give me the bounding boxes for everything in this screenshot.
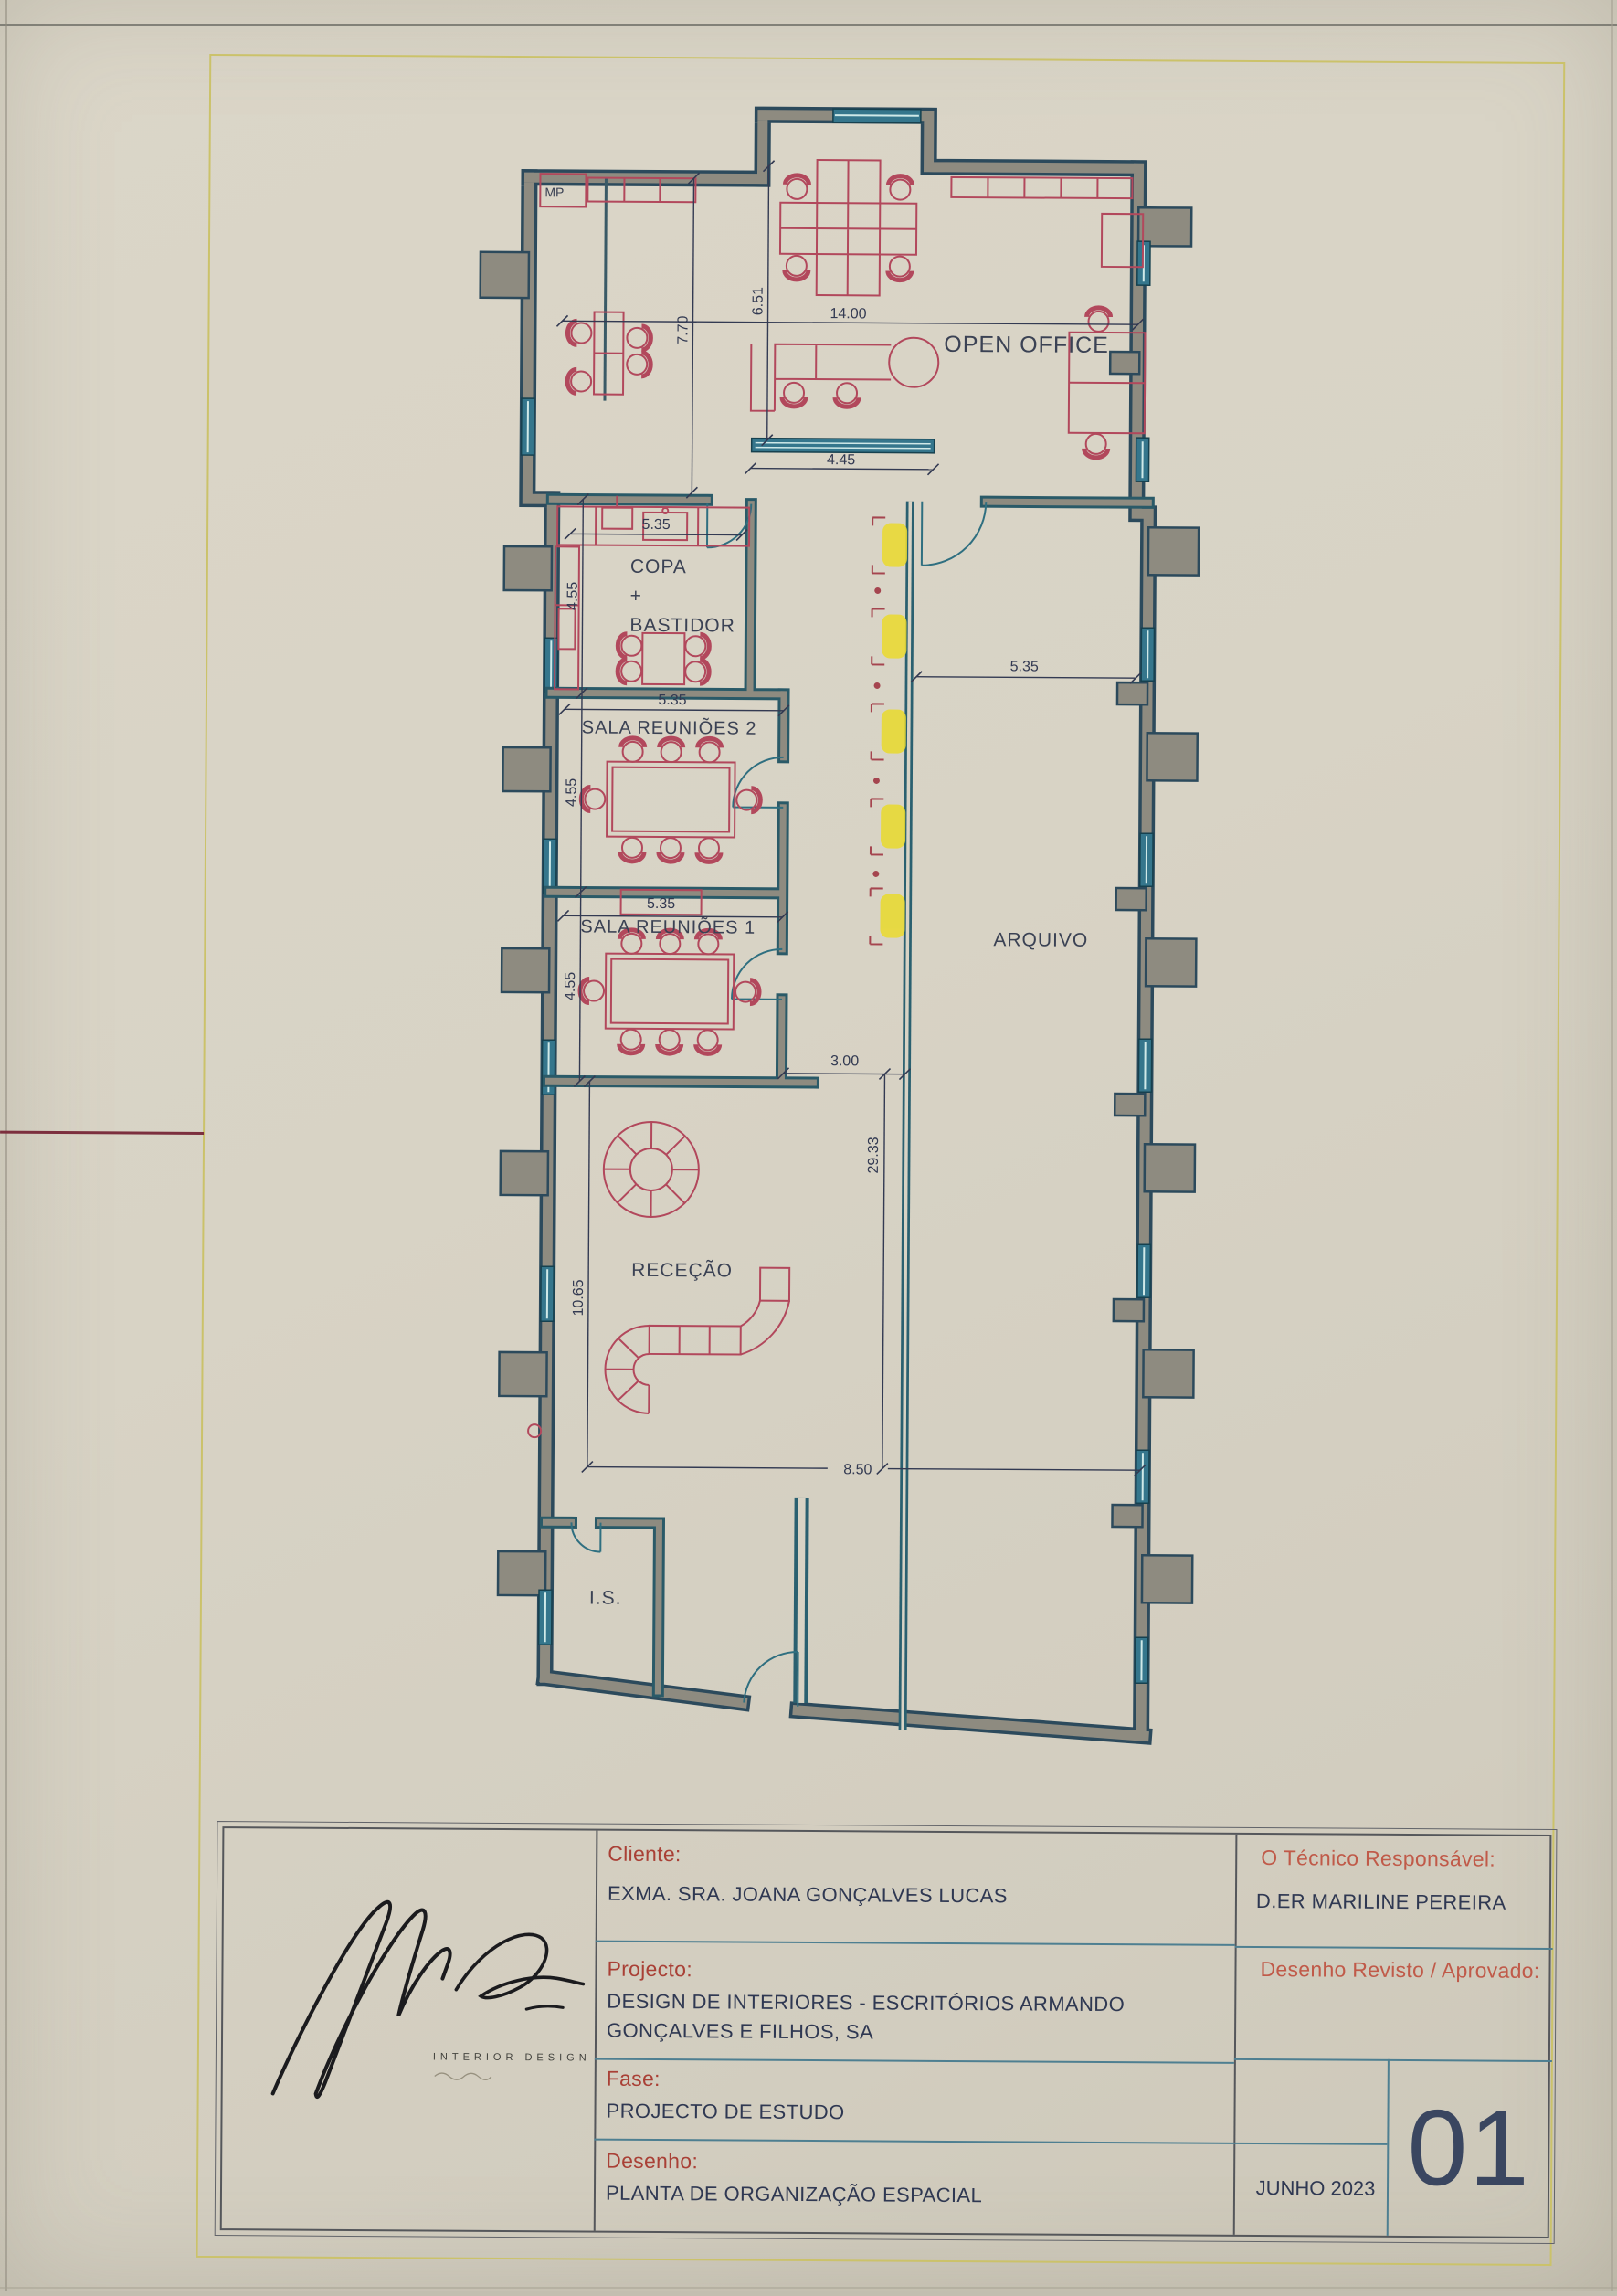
projecto-value-line1: DESIGN DE INTERIORES - ESCRITÓRIOS ARMAN… [607,1990,1125,2016]
label-copa-2: + [630,586,642,607]
dim-sala2-width: 5.35 [658,693,686,708]
wall-counter-right [951,177,1132,198]
dim-sala1-height: 4.55 [563,972,578,1000]
label-arquivo: ARQUIVO [993,929,1088,951]
dim-sala1-width: 5.35 [647,896,675,912]
desk-paddle [751,337,938,412]
row-line-1 [596,1941,1235,1946]
date-value: JUNHO 2023 [1247,2176,1384,2201]
logo-subtitle: INTERIOR DESIGN [433,2052,591,2064]
dim-corridor-length: 29.33 [866,1137,882,1173]
desenho-value: PLANTA DE ORGANIZAÇÃO ESPACIAL [606,2182,982,2208]
designer-logo: INTERIOR DESIGN [222,1828,597,2234]
label-sala-1: SALA REUNIÕES 1 [580,915,756,937]
projecto-label: Projecto: [607,1957,692,1983]
logo-script [435,2073,491,2079]
scanned-sheet: 14.00 7.70 6.51 4.45 5.35 4.55 5.35 4.55… [0,0,1617,2291]
projecto-value-line2: GONÇALVES E FILHOS, SA [607,2019,873,2045]
cliente-value: EXMA. SRA. JOANA GONÇALVES LUCAS [608,1882,1008,1909]
title-block: INTERIOR DESIGN Cliente: EXMA. SRA. JOAN… [220,1826,1552,2238]
dim-copa-width: 5.35 [642,517,671,533]
signature-stroke-2 [456,1934,583,1998]
sheet-number: 01 [1389,2061,1550,2236]
tecnico-value: D.ER MARILINE PEREIRA [1256,1889,1506,1915]
dim-corridor-top: 4.45 [827,452,855,468]
dimension-texts: 14.00 7.70 6.51 4.45 5.35 4.55 5.35 4.55… [560,286,1041,1479]
printed-drawing: 14.00 7.70 6.51 4.45 5.35 4.55 5.35 4.55… [0,0,1617,2296]
dim-arquivo-width: 5.35 [1010,659,1039,674]
dim-copa-height: 4.55 [565,582,581,610]
label-sala-2: SALA REUNIÕES 2 [582,715,757,738]
thin-partitions [800,501,910,1730]
wall-pilasters [472,204,1200,1603]
dim-corridor-width: 3.00 [830,1053,859,1069]
label-copa-1: COPA [630,556,687,577]
dim-open-office-height-right: 6.51 [751,287,766,315]
label-is: I.S. [589,1588,622,1609]
row-line-r3 [1233,2143,1387,2145]
desenho-label: Desenho: [606,2149,698,2174]
row-line-r1 [1235,1946,1553,1950]
label-rececao: RECEÇÃO [631,1259,733,1282]
row-line-2 [595,2058,1234,2064]
label-mp: MP [544,185,564,199]
dim-rececao-width: 8.50 [843,1462,872,1477]
dim-sala2-height: 4.55 [564,778,579,807]
corridor-highlights [870,517,907,944]
meeting-table-2 [607,762,735,838]
label-open-office: OPEN OFFICE [944,332,1109,358]
fase-value: PROJECTO DE ESTUDO [606,2100,844,2125]
dim-open-office-width: 14.00 [830,306,866,322]
divider-right-column [1233,1835,1238,2235]
revisto-label: Desenho Revisto / Aprovado: [1260,1957,1539,1984]
tecnico-label: O Técnico Responsável: [1261,1846,1495,1872]
fase-label: Fase: [607,2067,661,2091]
desk-cluster-left [594,312,624,395]
row-line-3 [594,2139,1233,2144]
dim-open-office-height-left: 7.70 [675,315,691,344]
dim-rececao-height: 10.65 [571,1279,587,1316]
glass-partition [752,439,935,453]
copa-table [642,633,684,684]
meeting-table-1 [606,954,734,1030]
round-table [604,1122,700,1218]
reception-desk [605,1267,789,1414]
signature-stroke-1 [273,1901,450,2098]
signature-stroke-3 [526,2006,563,2010]
cliente-label: Cliente: [608,1842,682,1867]
label-copa-3: BASTIDOR [629,615,735,637]
